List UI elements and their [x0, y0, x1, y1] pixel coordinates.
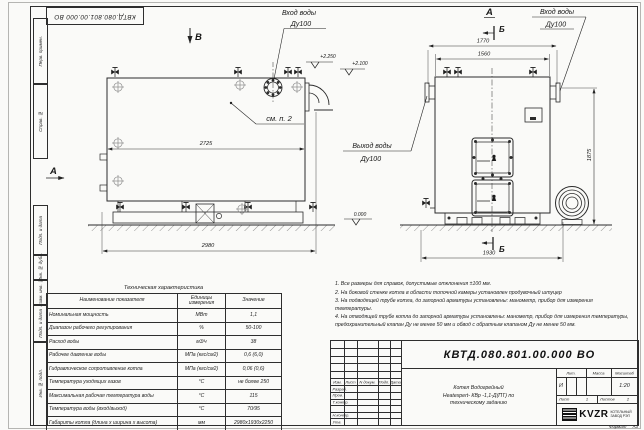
- mass-label: Масса: [593, 370, 605, 375]
- svg-text:1560: 1560: [478, 52, 491, 58]
- valve-icon: [443, 68, 451, 78]
- valve-icon: [116, 203, 124, 213]
- col-list: Лист: [345, 379, 355, 384]
- svg-text:1770: 1770: [477, 39, 490, 45]
- sheet-label: Лист: [559, 397, 569, 402]
- elevation-2100: +2.100: [352, 61, 368, 67]
- table-row: Температура уходящих газов°Сне более 250: [47, 376, 282, 390]
- view-a-label: А: [485, 7, 493, 18]
- table-row: Максимальная рабочая температура воды°С1…: [47, 390, 282, 404]
- tech-table-header-row: Наименование показателя Единицы измерени…: [47, 294, 282, 309]
- note-4: 4. На отводящей трубе котла до запорной …: [335, 314, 631, 329]
- valve-icon: [309, 203, 317, 213]
- door-handle-icon: [492, 155, 496, 161]
- title-block: Изм. Лист N докум. Подп. Дата Разраб. Пр…: [330, 340, 639, 426]
- row-prov: Пров.: [333, 393, 344, 398]
- inlet-dn: Ду100: [290, 21, 311, 28]
- valve-icon: [111, 68, 119, 78]
- tech-header-value: Значение: [226, 294, 282, 309]
- sheet-number: 1: [586, 397, 588, 402]
- note-3: 3. На подводящей трубе котла, до запорно…: [335, 298, 631, 313]
- table-row: Номинальная мощностьМВт1,1: [47, 309, 282, 323]
- section-b-bottom-label: Б: [499, 245, 505, 254]
- target-mark-icon: [236, 203, 248, 215]
- valve-icon: [182, 203, 190, 213]
- svg-text:2980: 2980: [201, 243, 215, 249]
- svg-text:1875: 1875: [587, 148, 593, 161]
- valve-icon: [284, 68, 292, 78]
- valve-icon: [454, 68, 462, 78]
- table-row: Рабочее давление водыМПа (кгс/см2)0,6 (6…: [47, 349, 282, 363]
- target-mark-icon: [234, 79, 246, 91]
- scale-label: Масштаб: [615, 370, 634, 375]
- col-podp: Подп.: [379, 379, 390, 384]
- table-row: Габариты котла (длина х ширина х высота)…: [47, 417, 282, 430]
- outlet-label: Выход воды: [352, 142, 392, 150]
- valve-icon: [294, 68, 302, 78]
- dimension-2980: 2980: [102, 112, 316, 254]
- row-utv: Утв.: [333, 419, 342, 424]
- tech-table-title: Техническая характеристика: [46, 285, 281, 291]
- sheets-label: Листов: [600, 397, 615, 402]
- valve-icon: [422, 199, 430, 209]
- boiler-front-view: [425, 68, 589, 232]
- inlet-label-right: Вход воды: [540, 8, 575, 16]
- notes-block: 1. Все размеры для справок, допустимые о…: [335, 281, 631, 330]
- door-handle-icon: [492, 195, 496, 201]
- col-ndokum: N докум.: [359, 379, 375, 384]
- table-row: Расход водым3/ч38: [47, 336, 282, 350]
- table-row: Диапазон рабочего регулирования%50-100: [47, 322, 282, 336]
- kvzr-logo-text: KVZR: [579, 409, 608, 420]
- dimension-2725: 2725: [108, 141, 304, 149]
- row-nkontr: Н.контр.: [333, 412, 350, 417]
- company-cell: KVZR КОТЕЛЬНЫЙ ЗАВОД РЭП: [556, 403, 638, 425]
- section-b-top-label: Б: [499, 25, 505, 34]
- lit-value: И: [559, 383, 563, 389]
- boiler-side-view: [100, 62, 333, 223]
- table-row: Гидравлическое сопротивление котлаМПа (к…: [47, 363, 282, 377]
- valve-icon: [529, 68, 537, 78]
- doc-number: КВТД.080.801.00.000 ВО: [401, 341, 638, 368]
- product-name: Котел Водогрейный Heatexpert- КВр -1,1-Д…: [401, 368, 556, 425]
- target-mark-icon: [112, 137, 124, 149]
- inlet-label: Вход воды: [282, 9, 317, 17]
- row-tkontr: Т.контр.: [333, 399, 349, 404]
- svg-text:1930: 1930: [483, 251, 496, 257]
- see-note-label: см. п. 2: [266, 114, 292, 123]
- svg-text:2725: 2725: [199, 141, 213, 147]
- format-value: А3: [633, 424, 638, 429]
- drawing-sheet: Перв. примен. Справ. № Подп. и дата Инв.…: [0, 0, 644, 430]
- target-mark-icon: [291, 81, 303, 93]
- outlet-dn: Ду100: [360, 156, 381, 163]
- note-2: 2. На боковой стенке котла в области топ…: [335, 290, 631, 298]
- dimension-1875: 1875: [562, 88, 597, 225]
- row-razrab: Разраб.: [333, 386, 347, 391]
- valve-icon: [234, 68, 242, 78]
- view-b-label: В: [195, 32, 202, 43]
- company-name: КОТЕЛЬНЫЙ ЗАВОД РЭП: [610, 410, 631, 419]
- table-row: Температура воды (вход/выход)°С70/95: [47, 403, 282, 417]
- ground-right: [400, 225, 612, 231]
- left-view-labels: В Вход воды Ду100 см. п. 2 +2.250 +2.100…: [46, 9, 372, 225]
- target-mark-icon: [112, 81, 124, 93]
- inlet-dn-right: Ду100: [545, 22, 566, 29]
- note-1: 1. Все размеры для справок, допустимые о…: [335, 281, 631, 289]
- kvzr-logo-icon: [562, 408, 577, 421]
- col-data: Дата: [390, 379, 401, 384]
- elevation-2250: +2.250: [320, 54, 336, 60]
- lit-label: Лит.: [566, 370, 575, 375]
- scale-value: 1:20: [619, 383, 630, 389]
- tech-header-name: Наименование показателя: [47, 294, 178, 309]
- tech-table: Наименование показателя Единицы измерени…: [46, 293, 282, 430]
- format-label: Формат А3: [604, 424, 638, 429]
- elevation-0000: 0.000: [354, 212, 367, 218]
- sheets-number: 2: [627, 397, 629, 402]
- section-a-label: А: [49, 166, 57, 177]
- target-mark-icon: [112, 175, 124, 187]
- ground-left: [88, 225, 335, 231]
- tech-header-units: Единицы измерения: [178, 294, 226, 309]
- col-izm: Изм.: [333, 379, 342, 384]
